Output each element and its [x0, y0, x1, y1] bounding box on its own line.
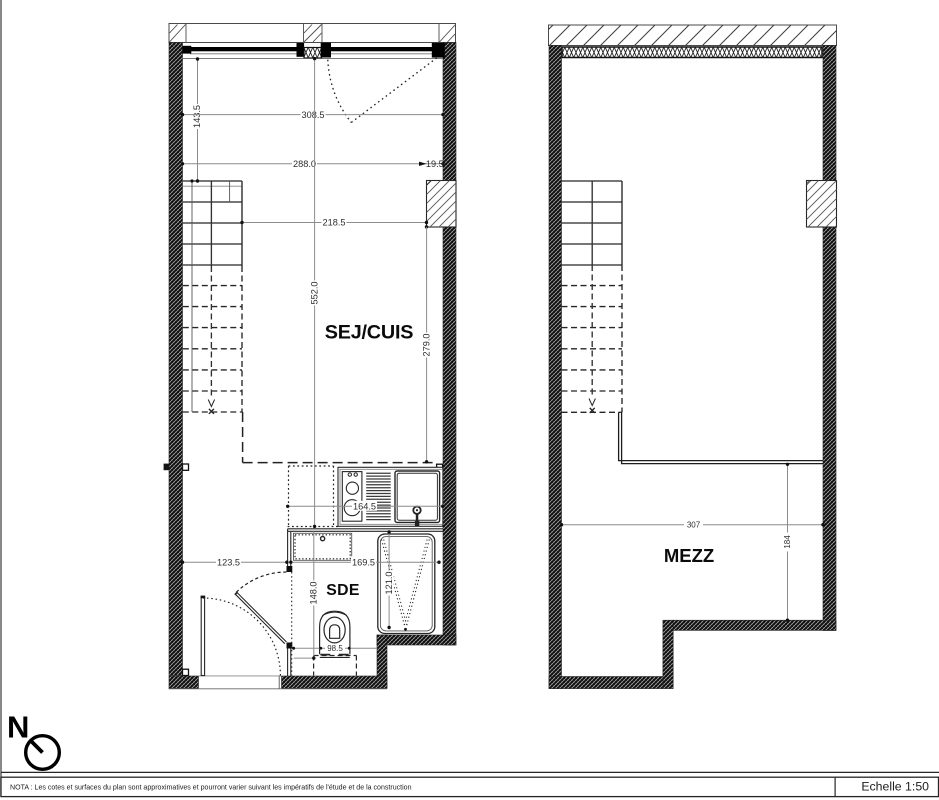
svg-text:19.5: 19.5 — [426, 159, 444, 169]
svg-text:218.5: 218.5 — [323, 218, 346, 228]
svg-text:308.5: 308.5 — [302, 110, 325, 120]
svg-text:148.0: 148.0 — [308, 582, 318, 605]
svg-text:MEZZ: MEZZ — [664, 545, 714, 566]
svg-text:164.5: 164.5 — [353, 502, 376, 512]
svg-text:SDE: SDE — [326, 582, 359, 599]
svg-text:288.0: 288.0 — [293, 159, 316, 169]
svg-text:Echelle 1:50: Echelle 1:50 — [861, 780, 929, 794]
svg-text:N: N — [7, 710, 29, 745]
svg-text:184: 184 — [783, 535, 792, 549]
svg-text:121.0: 121.0 — [384, 572, 394, 595]
svg-text:307: 307 — [687, 521, 701, 530]
svg-text:NOTA : Les cotes et surfaces d: NOTA : Les cotes et surfaces du plan son… — [10, 785, 412, 792]
svg-text:279.0: 279.0 — [421, 334, 431, 357]
svg-text:123.5: 123.5 — [217, 557, 240, 567]
svg-text:SEJ/CUIS: SEJ/CUIS — [325, 322, 414, 344]
svg-text:552.0: 552.0 — [309, 282, 319, 305]
svg-text:143.5: 143.5 — [192, 105, 202, 128]
svg-text:169.5: 169.5 — [352, 557, 375, 567]
svg-text:98.5: 98.5 — [327, 644, 343, 653]
